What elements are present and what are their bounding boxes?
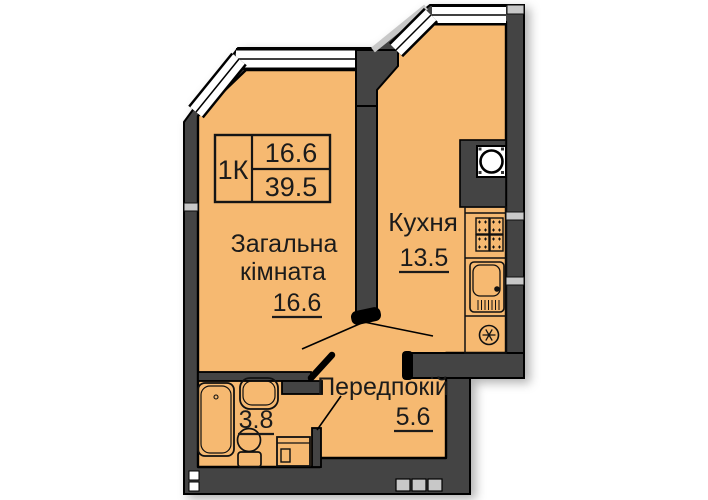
living-room-name-line2: кімната	[240, 258, 326, 286]
entry-threshold	[396, 479, 442, 491]
floor-plan-page: 1К 16.6 39.5 Загальна кімната 16.6 Кухня…	[0, 0, 708, 500]
living-bottom-wall	[198, 372, 311, 381]
wall-tick-right-1	[506, 212, 524, 220]
kitchen-name: Кухня	[388, 207, 458, 237]
divider-wall	[356, 106, 377, 314]
floor-plan: 1К 16.6 39.5 Загальна кімната 16.6 Кухня…	[0, 0, 708, 500]
living-room-name-line1: Загальна	[231, 230, 338, 258]
wall-tick-right-2	[506, 277, 524, 285]
kitchen-area: 13.5	[400, 244, 449, 272]
wall-tick-left	[184, 203, 198, 211]
bathroom-top-duct	[282, 381, 322, 394]
hallway-name: Передпокій	[317, 373, 449, 401]
hallway-area: 5.6	[396, 403, 431, 431]
living-area-value: 16.6	[265, 138, 318, 168]
washing-machine-icon	[477, 146, 506, 177]
wall-cap-top-right	[507, 5, 524, 14]
total-area-value: 39.5	[265, 172, 318, 202]
living-room-area: 16.6	[273, 289, 322, 317]
kitchen-niche	[460, 140, 506, 207]
bathroom-right-wall	[312, 428, 321, 467]
bathroom-label: 3.8	[238, 406, 274, 434]
bathroom-area: 3.8	[239, 406, 274, 434]
apartment-plan: 1К 16.6 39.5 Загальна кімната 16.6 Кухня…	[184, 5, 524, 494]
apartment-type-label: 1К	[218, 155, 249, 185]
